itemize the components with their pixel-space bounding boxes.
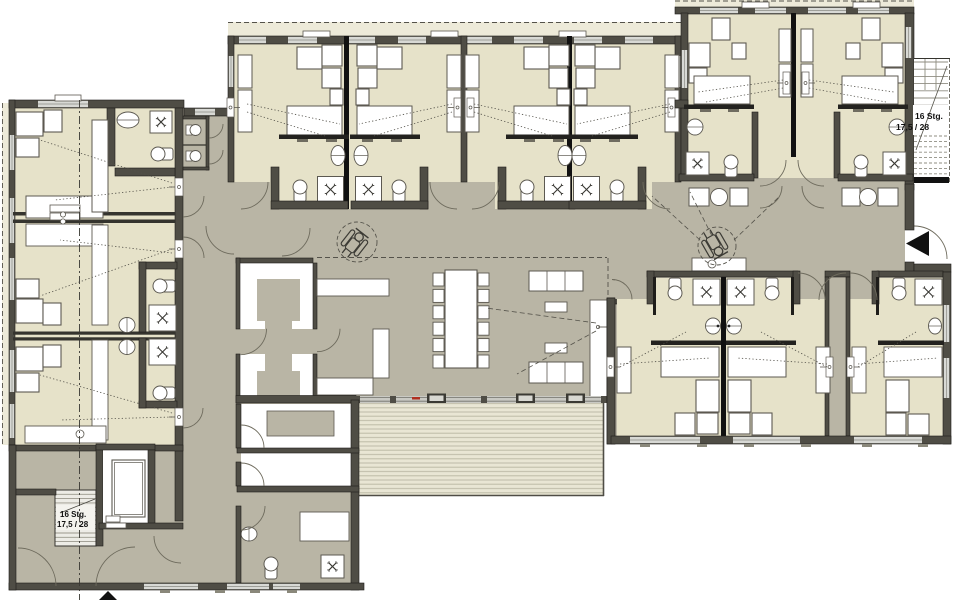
svg-text:17,5 / 28: 17,5 / 28: [57, 520, 89, 529]
svg-text:16 Stg.: 16 Stg.: [915, 111, 943, 121]
svg-text:16 Stg.: 16 Stg.: [60, 510, 86, 519]
svg-text:17,5 / 28: 17,5 / 28: [896, 122, 929, 132]
